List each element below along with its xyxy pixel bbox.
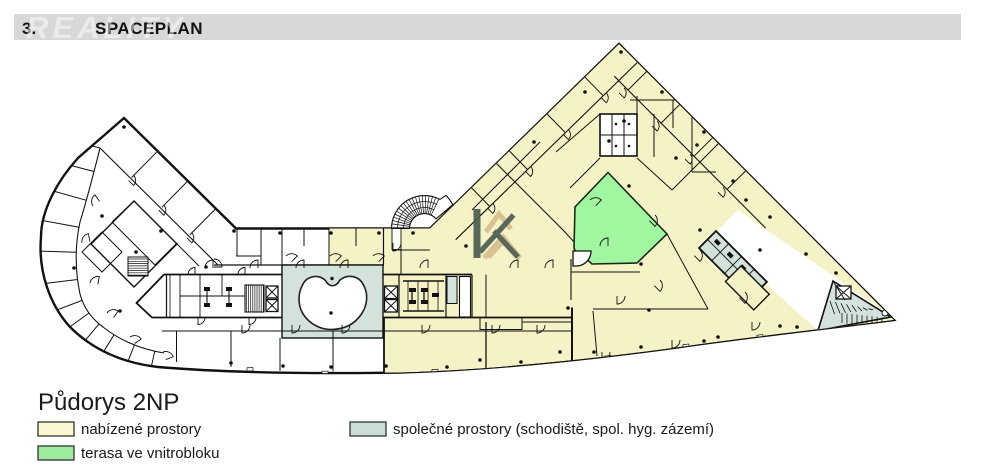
svg-text:Půdorys 2NP: Půdorys 2NP [38,389,179,416]
svg-text:REALITY: REALITY [26,10,187,45]
svg-text:společné prostory (schodiště,: společné prostory (schodiště, spol. hyg.… [393,421,714,438]
svg-text:nabízené prostory: nabízené prostory [81,421,202,438]
svg-text:terasa ve vnitrobloku: terasa ve vnitrobloku [81,445,219,462]
